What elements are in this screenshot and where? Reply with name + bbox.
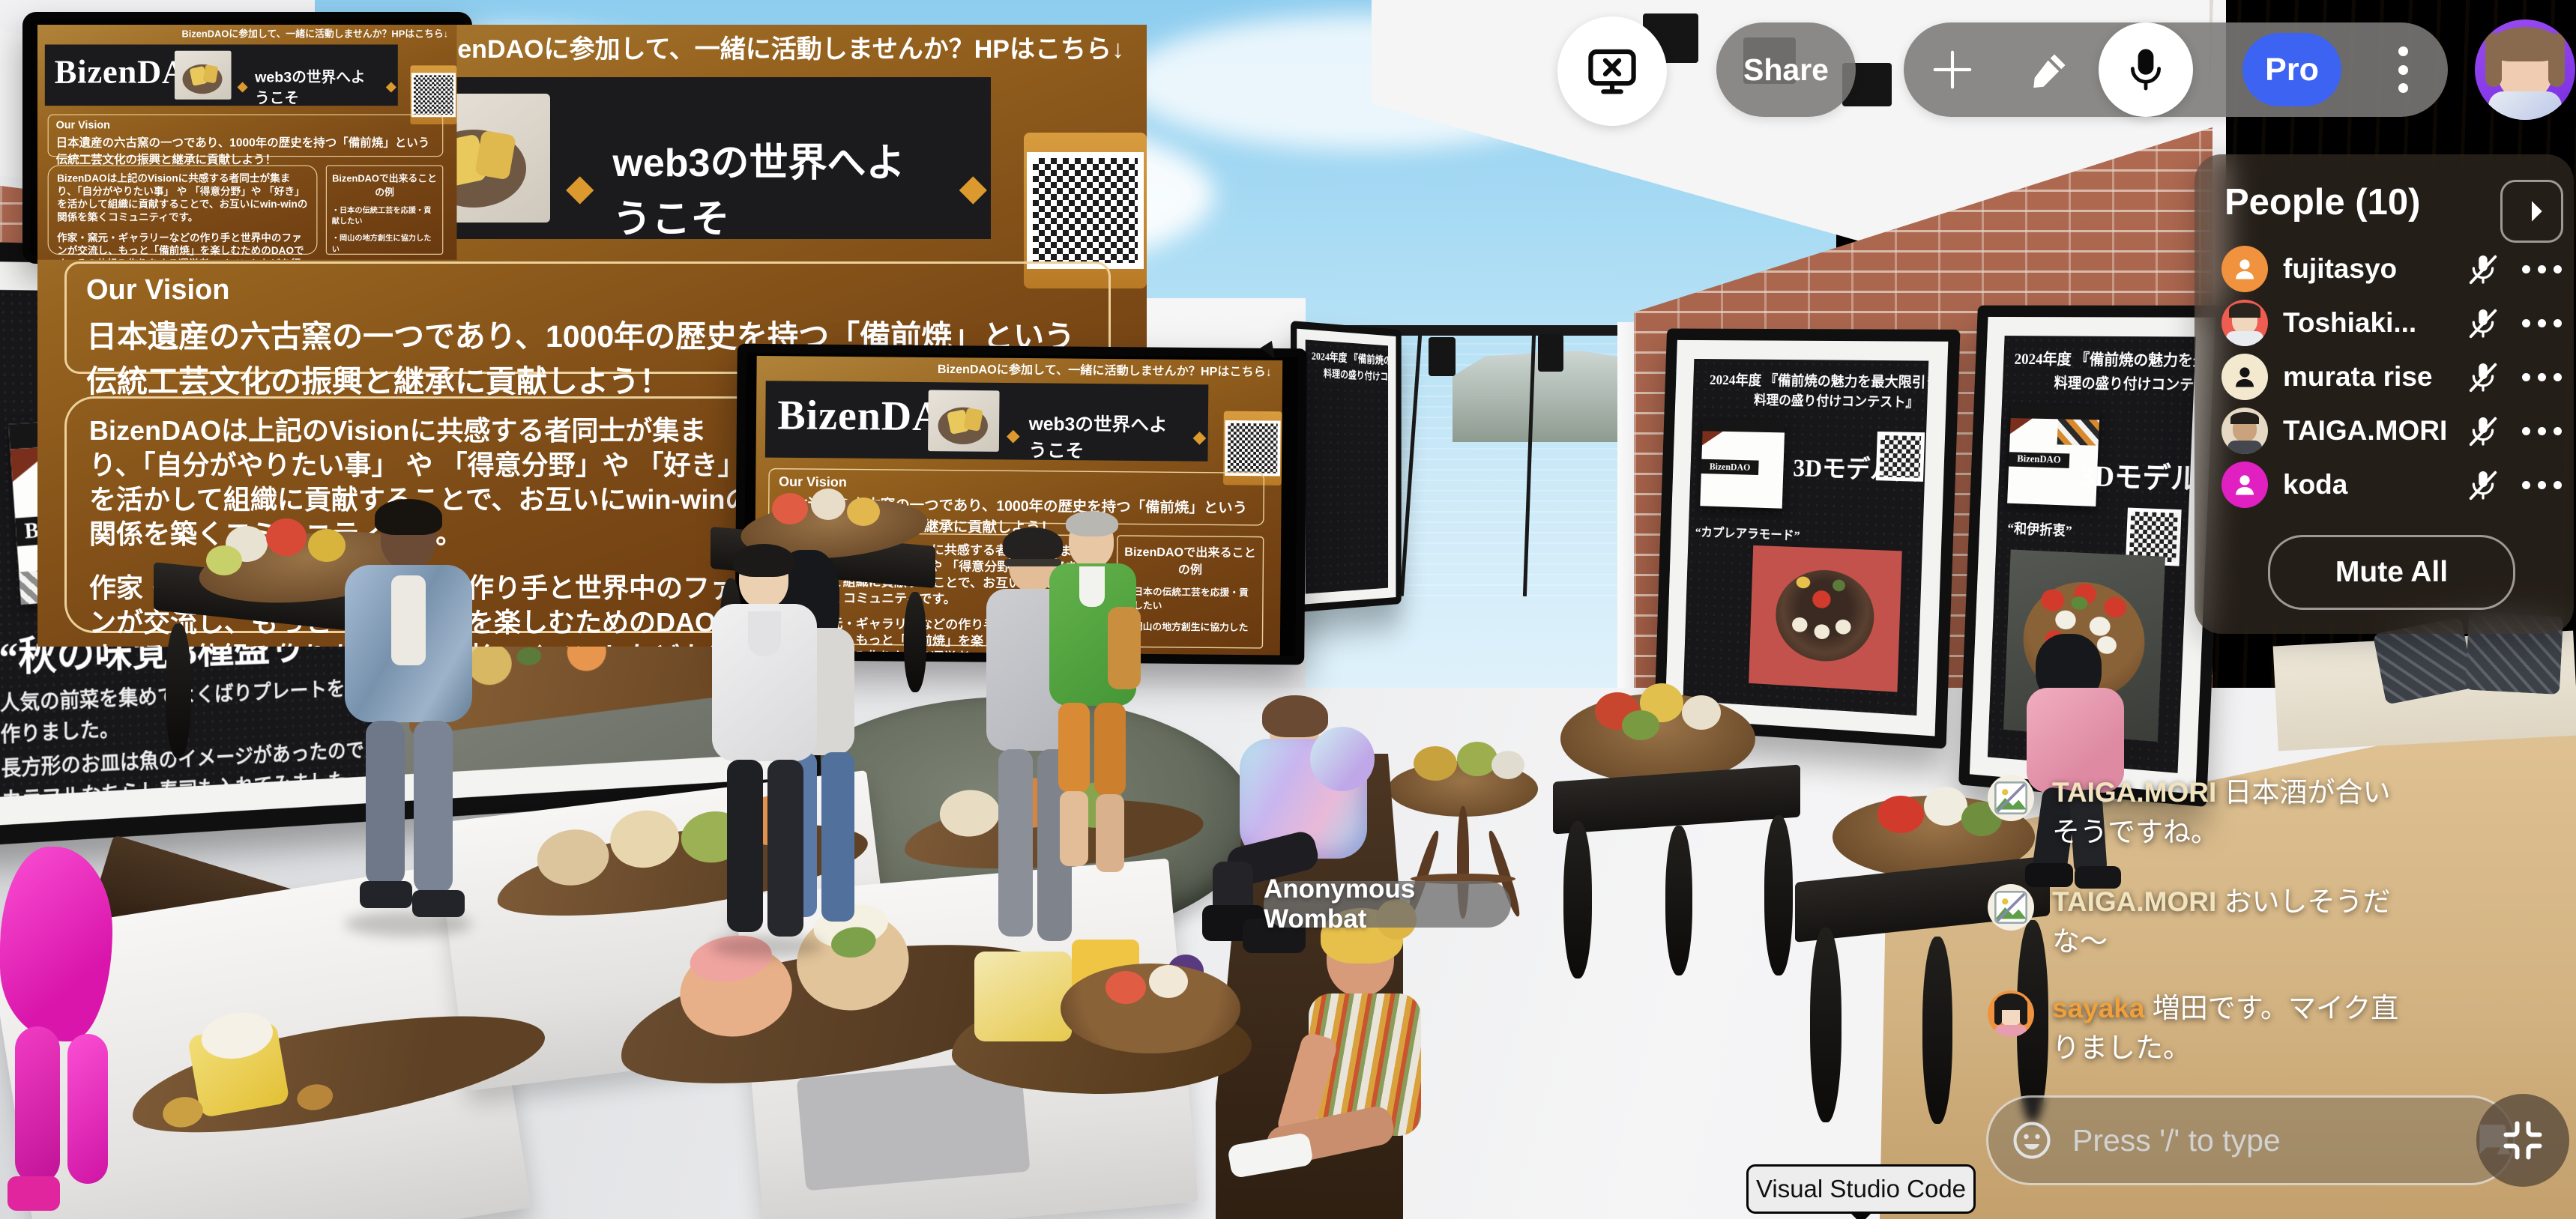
contest-title-line1: 2024年度 『備前焼の魅力を最大限引き出す xyxy=(2014,348,2196,373)
avatar-man-white-hoodie[interactable] xyxy=(696,551,830,956)
poster-welcome-text: web3の世界へようこそ xyxy=(1028,408,1184,463)
mic-muted-button[interactable] xyxy=(2457,252,2509,286)
chat-sender-name: TAIGA.MORI xyxy=(2052,777,2216,808)
vision-title: Our Vision xyxy=(56,119,435,131)
collapse-panel-button[interactable] xyxy=(2500,180,2563,243)
award-label: 3Dモデル賞 xyxy=(2080,452,2196,499)
vision-title: Our Vision xyxy=(779,474,1254,494)
draw-button[interactable] xyxy=(2001,48,2099,91)
people-panel: People (10) fujitasyo xyxy=(2195,154,2574,634)
chat-sender-name: TAIGA.MORI xyxy=(2052,886,2216,917)
mic-off-icon xyxy=(2466,252,2500,286)
poster-welcome-text: web3の世界へようこそ xyxy=(255,65,378,108)
person-name: Toshiaki... xyxy=(2283,307,2457,339)
contest-title-line2: 料理の盛り付けコンテスト』 xyxy=(2054,371,2196,395)
kebab-dot xyxy=(2398,83,2408,93)
more-options-button[interactable] xyxy=(2380,42,2425,97)
avatar-man-blue-jacket[interactable] xyxy=(322,506,495,934)
vision-text: 日本遺産の六古窯の一つであり、1000年の歴史を持つ「備前焼」という伝統工芸文化… xyxy=(56,133,435,166)
mic-muted-button[interactable] xyxy=(2457,306,2509,340)
avatar-man-green-cardigan[interactable] xyxy=(1036,517,1148,877)
mic-muted-button[interactable] xyxy=(2457,414,2509,448)
mic-icon xyxy=(2122,46,2170,94)
mic-off-icon xyxy=(2466,306,2500,340)
spatial-3d-room: 2014年度 『備前焼の魅力を最大限引き出す 料理の盛り付けコンテスト』 hin… xyxy=(0,0,2576,1219)
mute-all-button[interactable]: Mute All xyxy=(2268,535,2515,610)
bench-cushion xyxy=(2273,631,2576,751)
qr-code xyxy=(1876,432,1925,482)
stop-screenshare-button[interactable] xyxy=(1557,16,1667,126)
diamond-icon: ◆ xyxy=(386,79,396,94)
mic-muted-button[interactable] xyxy=(2457,360,2509,394)
person-avatar xyxy=(2221,408,2268,454)
person-row[interactable]: TAIGA.MORI xyxy=(2195,406,2574,456)
mic-off-icon xyxy=(2466,360,2500,394)
person-row[interactable]: koda xyxy=(2195,460,2574,509)
person-avatar xyxy=(2221,354,2268,400)
person-row[interactable]: Toshiaki... xyxy=(2195,298,2574,348)
person-row[interactable]: murata rise xyxy=(2195,352,2574,402)
poster-welcome-line: ◆ web3の世界へようこそ ◆ xyxy=(567,131,986,244)
contest-title-line2: 料理の盛り付けコンテスト』 xyxy=(1754,390,1919,411)
person-more-button[interactable] xyxy=(2509,373,2574,381)
screen-x-icon xyxy=(1583,42,1641,100)
chat-text-input[interactable] xyxy=(2071,1122,2473,1159)
avatar-hair xyxy=(2548,33,2565,87)
microphone-button[interactable] xyxy=(2099,22,2193,117)
emoji-button[interactable] xyxy=(2009,1118,2054,1163)
person-name: koda xyxy=(2283,469,2457,500)
entry-card: BizenDAO xyxy=(1700,420,1785,509)
person-avatar xyxy=(2221,462,2268,508)
diamond-icon: ◆ xyxy=(567,167,593,208)
nametag-label: Anonymous Wombat xyxy=(1264,874,1511,934)
person-more-button[interactable] xyxy=(2509,265,2574,273)
poster-vision-box: Our Vision 日本遺産の六古窯の一つであり、1000年の歴史を持つ「備前… xyxy=(48,114,444,157)
bizendao-poster: BizenDAOに参加して、一緒に活動しませんか？HPはこちら↓ BizenDA… xyxy=(37,25,456,260)
console-table xyxy=(1553,746,1800,993)
chat-avatar-broken-image xyxy=(1988,775,2034,821)
avatar-blonde-woman[interactable] xyxy=(1237,922,1462,1219)
add-content-button[interactable] xyxy=(1904,46,2001,93)
plus-icon xyxy=(1929,46,1976,93)
person-name: murata rise xyxy=(2283,361,2457,393)
profile-avatar-button[interactable] xyxy=(2475,19,2575,120)
person-avatar xyxy=(2221,246,2268,292)
pro-label: Pro xyxy=(2265,52,2319,88)
about-paragraph: BizenDAOは上記のVisionに共感する者同士が集まり、「自分がやりたい事… xyxy=(57,172,308,224)
chat-message: TAIGA.MORI 日本酒が合いそうですね。 xyxy=(1988,773,2407,852)
people-panel-title: People (10) xyxy=(2224,181,2420,223)
poster-examples-box: BizenDAOで出来ることの例 ・日本の伝統工芸を応援・貢献したい ・岡山の地… xyxy=(326,165,443,254)
share-label: Share xyxy=(1743,52,1829,88)
spotlight xyxy=(1429,337,1456,376)
pro-badge-button[interactable]: Pro xyxy=(2242,33,2341,106)
poster-welcome-text: web3の世界へようこそ xyxy=(612,131,940,244)
dish-name: “和伊折衷” xyxy=(2007,518,2072,540)
person-icon xyxy=(2231,363,2258,390)
diamond-icon: ◆ xyxy=(1007,426,1019,445)
examples-title: BizenDAOで出来ることの例 xyxy=(332,171,438,199)
chat-avatar-sayaka xyxy=(1988,990,2034,1037)
collapse-arrow-icon xyxy=(2521,201,2542,221)
poster-join-note: BizenDAOに参加して、一緒に活動しませんか？HPはこちら↓ xyxy=(756,356,1272,384)
dock-tooltip-label: Visual Studio Code xyxy=(1756,1175,1966,1203)
avatar-hair xyxy=(2485,33,2502,87)
chat-input-bar[interactable] xyxy=(1986,1095,2515,1185)
poster-header-band: BizenDAO ◆ web3の世界へようこそ ◆ xyxy=(45,44,398,106)
image-placeholder-icon xyxy=(1988,884,2034,931)
entry-card-brand: BizenDAO xyxy=(2009,453,2069,469)
shrink-icon xyxy=(2500,1118,2545,1163)
person-more-button[interactable] xyxy=(2509,319,2574,327)
person-more-button[interactable] xyxy=(2509,481,2574,489)
kebab-dot xyxy=(2398,65,2408,75)
person-icon xyxy=(2231,255,2258,282)
person-name: TAIGA.MORI xyxy=(2283,415,2457,447)
dish-name: “カプレアラモード” xyxy=(1695,521,1800,543)
dock-tooltip: Visual Studio Code xyxy=(1746,1164,1976,1214)
entry-card-brand: BizenDAO xyxy=(1701,459,1759,475)
poster-join-note: BizenDAOに参加して、一緒に活動しませんか？HPはこちら↓ xyxy=(37,25,448,43)
gallery-poster-sliver[interactable]: 2024年度 『備前焼の魅力を最大限引き出す 料理の盛り付けコンテスト』 xyxy=(1291,321,1402,613)
poster-welcome-line: ◆ web3の世界へようこそ ◆ xyxy=(238,65,396,108)
avatar-clothes xyxy=(2488,91,2562,120)
avatar-pink-creature[interactable] xyxy=(0,847,142,1219)
person-icon xyxy=(2231,471,2258,498)
vision-title: Our Vision xyxy=(86,274,1089,306)
window-mullion xyxy=(1400,334,1422,596)
chat-message: TAIGA.MORI おいしそうだな〜 xyxy=(1988,883,2407,961)
chat-message: sayaka 増田です。マイク直りました。 xyxy=(1988,989,2407,1068)
share-button[interactable]: Share xyxy=(1716,22,1856,117)
person-row[interactable]: fujitasyo xyxy=(2195,244,2574,294)
contest-title-line1: 2024年度 『備前焼の魅力を最大限引き出す xyxy=(1710,369,1929,392)
example-item: ・日本の伝統工芸を応援・貢献したい xyxy=(332,204,438,226)
diamond-icon: ◆ xyxy=(960,167,986,208)
person-name: fujitasyo xyxy=(2283,253,2457,285)
mic-muted-button[interactable] xyxy=(2457,468,2509,502)
toolbar-group: Pro xyxy=(1904,22,2448,117)
pencil-icon xyxy=(2028,48,2072,91)
spotlight xyxy=(1538,334,1563,372)
mic-off-icon xyxy=(2466,414,2500,448)
about-paragraph: 作家・窯元・ギャラリーなどの作り手と世界中のファンが交流し、もっと「備前焼」を楽… xyxy=(57,232,308,260)
poster-about-box: BizenDAOは上記のVisionに共感する者同士が集まり、「自分がやりたい事… xyxy=(48,165,318,254)
nametag-anonymous-wombat: Anonymous Wombat xyxy=(1264,881,1511,928)
screen-top-left[interactable]: BizenDAOに参加して、一緒に活動しませんか？HPはこちら↓ BizenDA… xyxy=(22,12,472,264)
diamond-icon: ◆ xyxy=(1193,427,1206,447)
image-placeholder-icon xyxy=(1988,775,2034,821)
diamond-icon: ◆ xyxy=(238,79,247,94)
exit-fullscreen-button[interactable] xyxy=(2476,1094,2569,1187)
mic-off-icon xyxy=(2466,468,2500,502)
chat-sender-name: sayaka xyxy=(2052,993,2144,1023)
poster-food-photo xyxy=(175,51,232,100)
poster-welcome-line: ◆ web3の世界へようこそ ◆ xyxy=(1007,408,1206,463)
poster-header-band: BizenDAO ◆ web3の世界へようこそ ◆ xyxy=(765,381,1208,462)
contest-title-line2: 料理の盛り付けコンテスト』 xyxy=(1324,366,1388,386)
person-more-button[interactable] xyxy=(2509,427,2574,435)
person-avatar xyxy=(2221,300,2268,346)
example-item: ・岡山の地方創生に協力したい xyxy=(332,232,438,253)
poster-food-photo xyxy=(928,390,1000,452)
chat-avatar-broken-image xyxy=(1988,884,2034,931)
mute-all-label: Mute All xyxy=(2335,556,2448,589)
smiley-icon xyxy=(2009,1118,2054,1163)
kebab-dot xyxy=(2398,46,2408,56)
dish-photo xyxy=(1749,545,1902,692)
gallery-poster-right-1[interactable]: 2024年度 『備前焼の魅力を最大限引き出す 料理の盛り付けコンテスト』 Biz… xyxy=(1654,328,1961,748)
